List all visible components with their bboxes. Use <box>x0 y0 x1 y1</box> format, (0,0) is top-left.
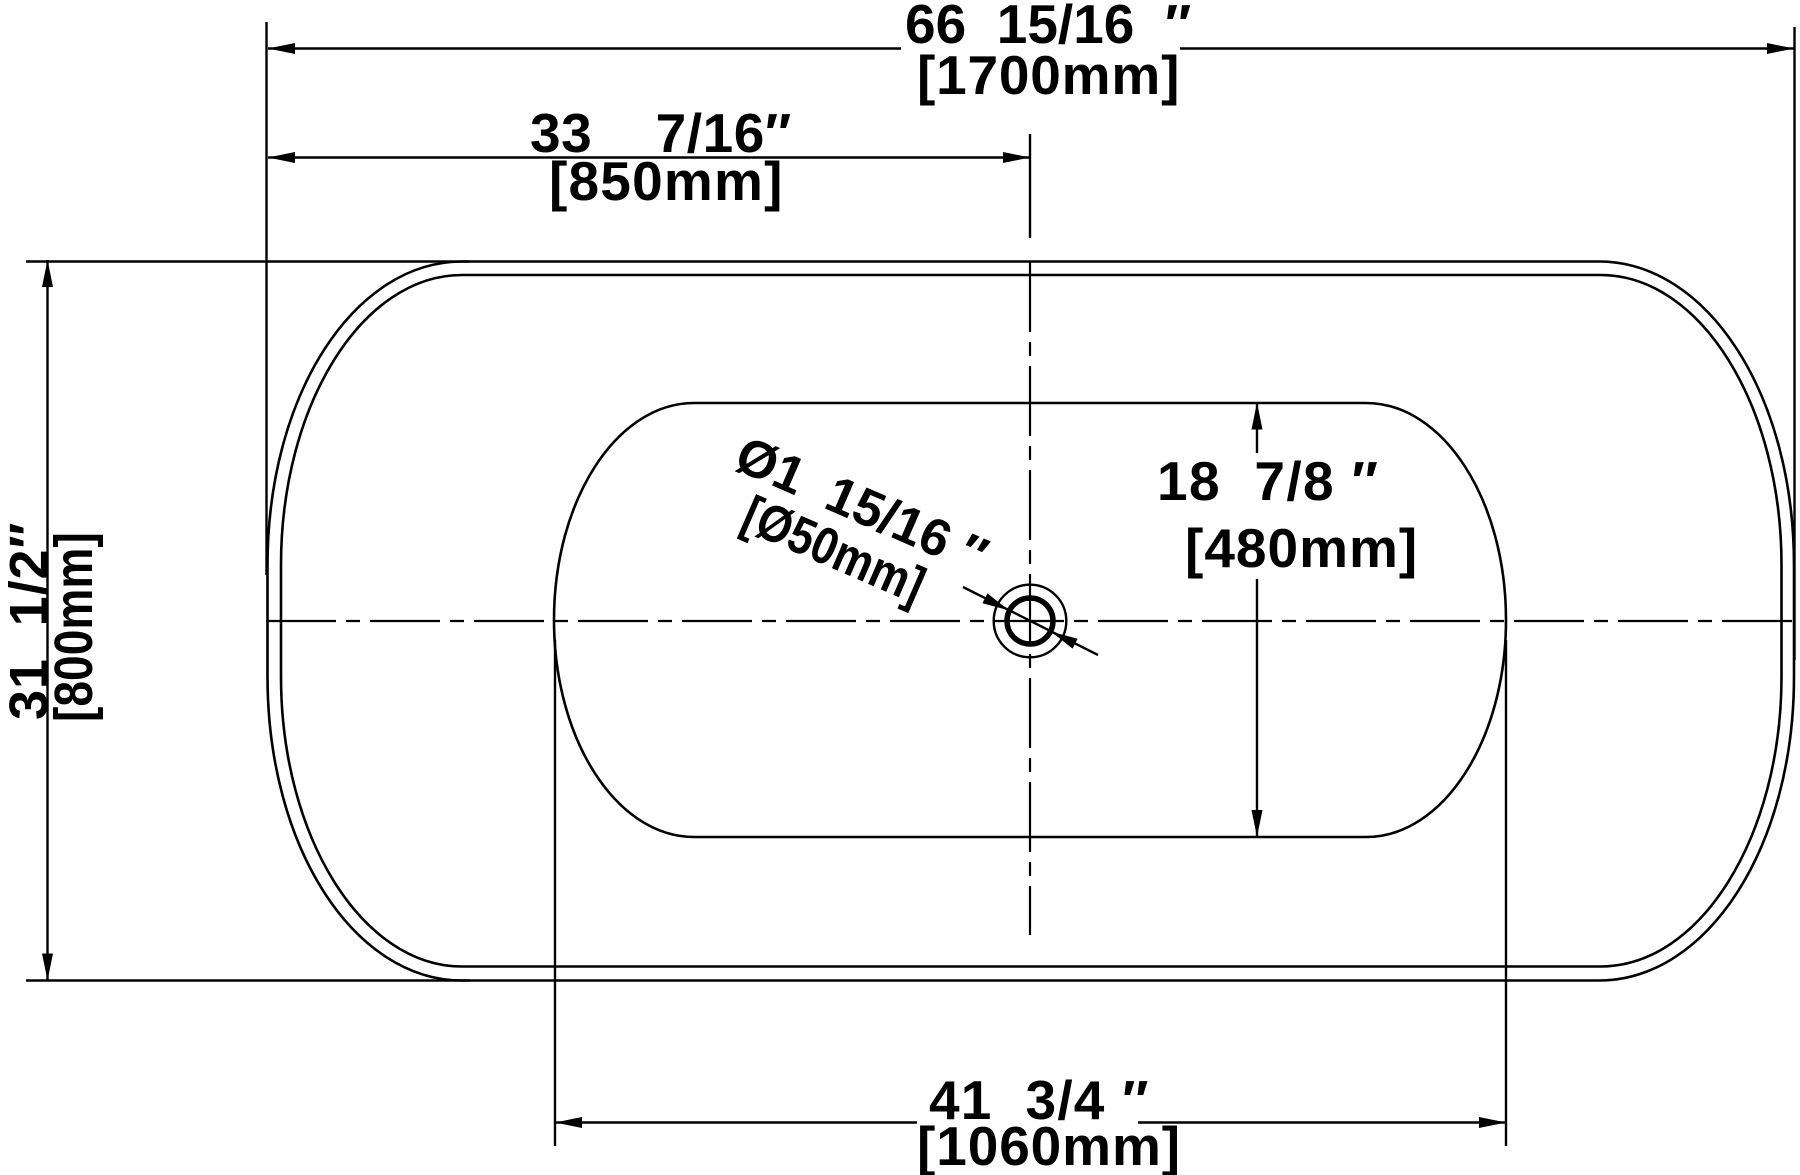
svg-text:[480mm]: [480mm] <box>1185 517 1418 579</box>
svg-text:[1060mm]: [1060mm] <box>917 1115 1181 1175</box>
svg-text:[850mm]: [850mm] <box>549 150 784 212</box>
svg-text:18 7/8 ″: 18 7/8 ″ <box>1157 450 1379 512</box>
svg-text:[800mm]: [800mm] <box>44 532 104 722</box>
svg-text:[1700mm]: [1700mm] <box>917 44 1180 106</box>
